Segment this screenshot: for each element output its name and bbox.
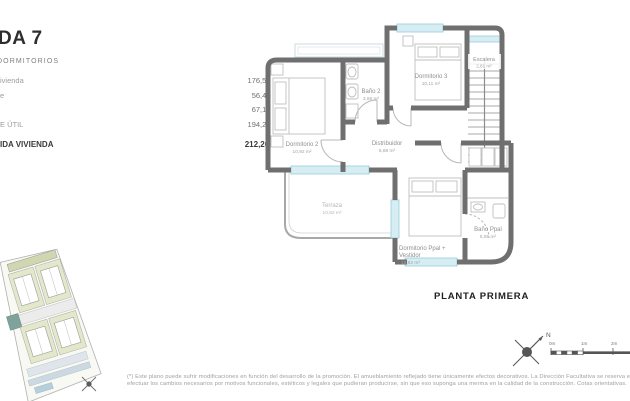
svg-text:3,68 m²: 3,68 m² <box>363 96 380 102</box>
room-label-dormitorio-2: Dormitorio 2 10,92 m² <box>286 142 319 155</box>
bed-dormitorio-ppal <box>409 178 461 236</box>
svg-text:Dormitorio 2: Dormitorio 2 <box>286 142 319 148</box>
floor-plan: Dormitorio 2 10,92 m² Baño 2 3,68 m² Dor… <box>255 12 530 312</box>
svg-text:Distribuidor: Distribuidor <box>372 141 402 147</box>
unit-subtitle: DORMITORIOS <box>0 58 59 65</box>
svg-text:Dormitorio Ppal +: Dormitorio Ppal + <box>399 246 446 252</box>
svg-text:10,11 m²: 10,11 m² <box>422 81 441 87</box>
bathroom-2-fixtures <box>346 64 358 118</box>
unit-title: DA 7 <box>0 28 43 50</box>
row-label: E ÚTIL <box>0 120 23 129</box>
room-label-bano-2: Baño 2 3,68 m² <box>361 89 381 102</box>
disclaimer-line-1: (*) Este plano puede sufrir modificacion… <box>127 374 630 381</box>
svg-text:10,92 m²: 10,92 m² <box>293 149 312 155</box>
row-label: IDA VIVIENDA <box>0 140 54 149</box>
planter-outline <box>295 44 383 57</box>
svg-text:2m: 2m <box>611 341 618 346</box>
site-compass-icon <box>82 377 96 391</box>
plan-sheet: DA 7 DORMITORIOS ivienda 176,55 m2 e 56,… <box>0 0 630 401</box>
area-table: ivienda 176,55 m2 e 56,43 m2 67,15 m2 E … <box>0 76 283 155</box>
svg-text:Vestidor: Vestidor <box>399 253 421 259</box>
bed-dormitorio-2 <box>271 64 325 147</box>
row-label: e <box>0 91 4 100</box>
svg-text:Dormitorio 3: Dormitorio 3 <box>415 74 448 80</box>
svg-text:5,55 m²: 5,55 m² <box>480 234 497 240</box>
scale-bar: 0m 1m 2m <box>548 337 630 359</box>
bathroom-ppal-fixtures <box>467 198 508 218</box>
bed-dormitorio-3 <box>403 36 461 100</box>
room-label-distribuidor: Distribuidor 6,88 m² <box>372 141 402 154</box>
table-row: 67,15 m2 <box>0 105 283 120</box>
svg-text:1m: 1m <box>581 341 588 346</box>
table-row: ivienda 176,55 m2 <box>0 76 283 91</box>
disclaimer-line-2: efectuar los cambios necesarios por moti… <box>127 381 630 388</box>
svg-text:Terraza: Terraza <box>322 203 343 209</box>
svg-text:Baño 2: Baño 2 <box>361 89 381 95</box>
floor-level-label: PLANTA PRIMERA <box>434 291 529 302</box>
svg-text:Escalera: Escalera <box>473 57 496 63</box>
room-label-terraza: Terraza 10,52 m² <box>322 203 343 216</box>
table-row: e 56,43 m2 <box>0 91 283 106</box>
row-label: ivienda <box>0 76 24 85</box>
scale-bar-segments <box>551 351 630 355</box>
svg-text:0m: 0m <box>549 341 556 346</box>
table-row-total: IDA VIVIENDA 212,26 m2 <box>0 140 283 155</box>
disclaimer-text: (*) Este plano puede sufrir modificacion… <box>127 374 630 389</box>
svg-text:10,52 m²: 10,52 m² <box>323 210 342 216</box>
table-row: E ÚTIL 194,20 m2 <box>0 120 283 135</box>
svg-text:6,88 m²: 6,88 m² <box>379 148 396 154</box>
site-plan <box>0 245 112 401</box>
room-label-bano-ppal: Baño Ppal 5,55 m² <box>474 227 502 240</box>
room-label-escalera: Escalera 2,81 m² <box>468 54 501 69</box>
svg-text:2,81 m²: 2,81 m² <box>476 64 492 69</box>
svg-text:Baño Ppal: Baño Ppal <box>474 227 502 233</box>
svg-text:15,82 m²: 15,82 m² <box>401 260 420 266</box>
